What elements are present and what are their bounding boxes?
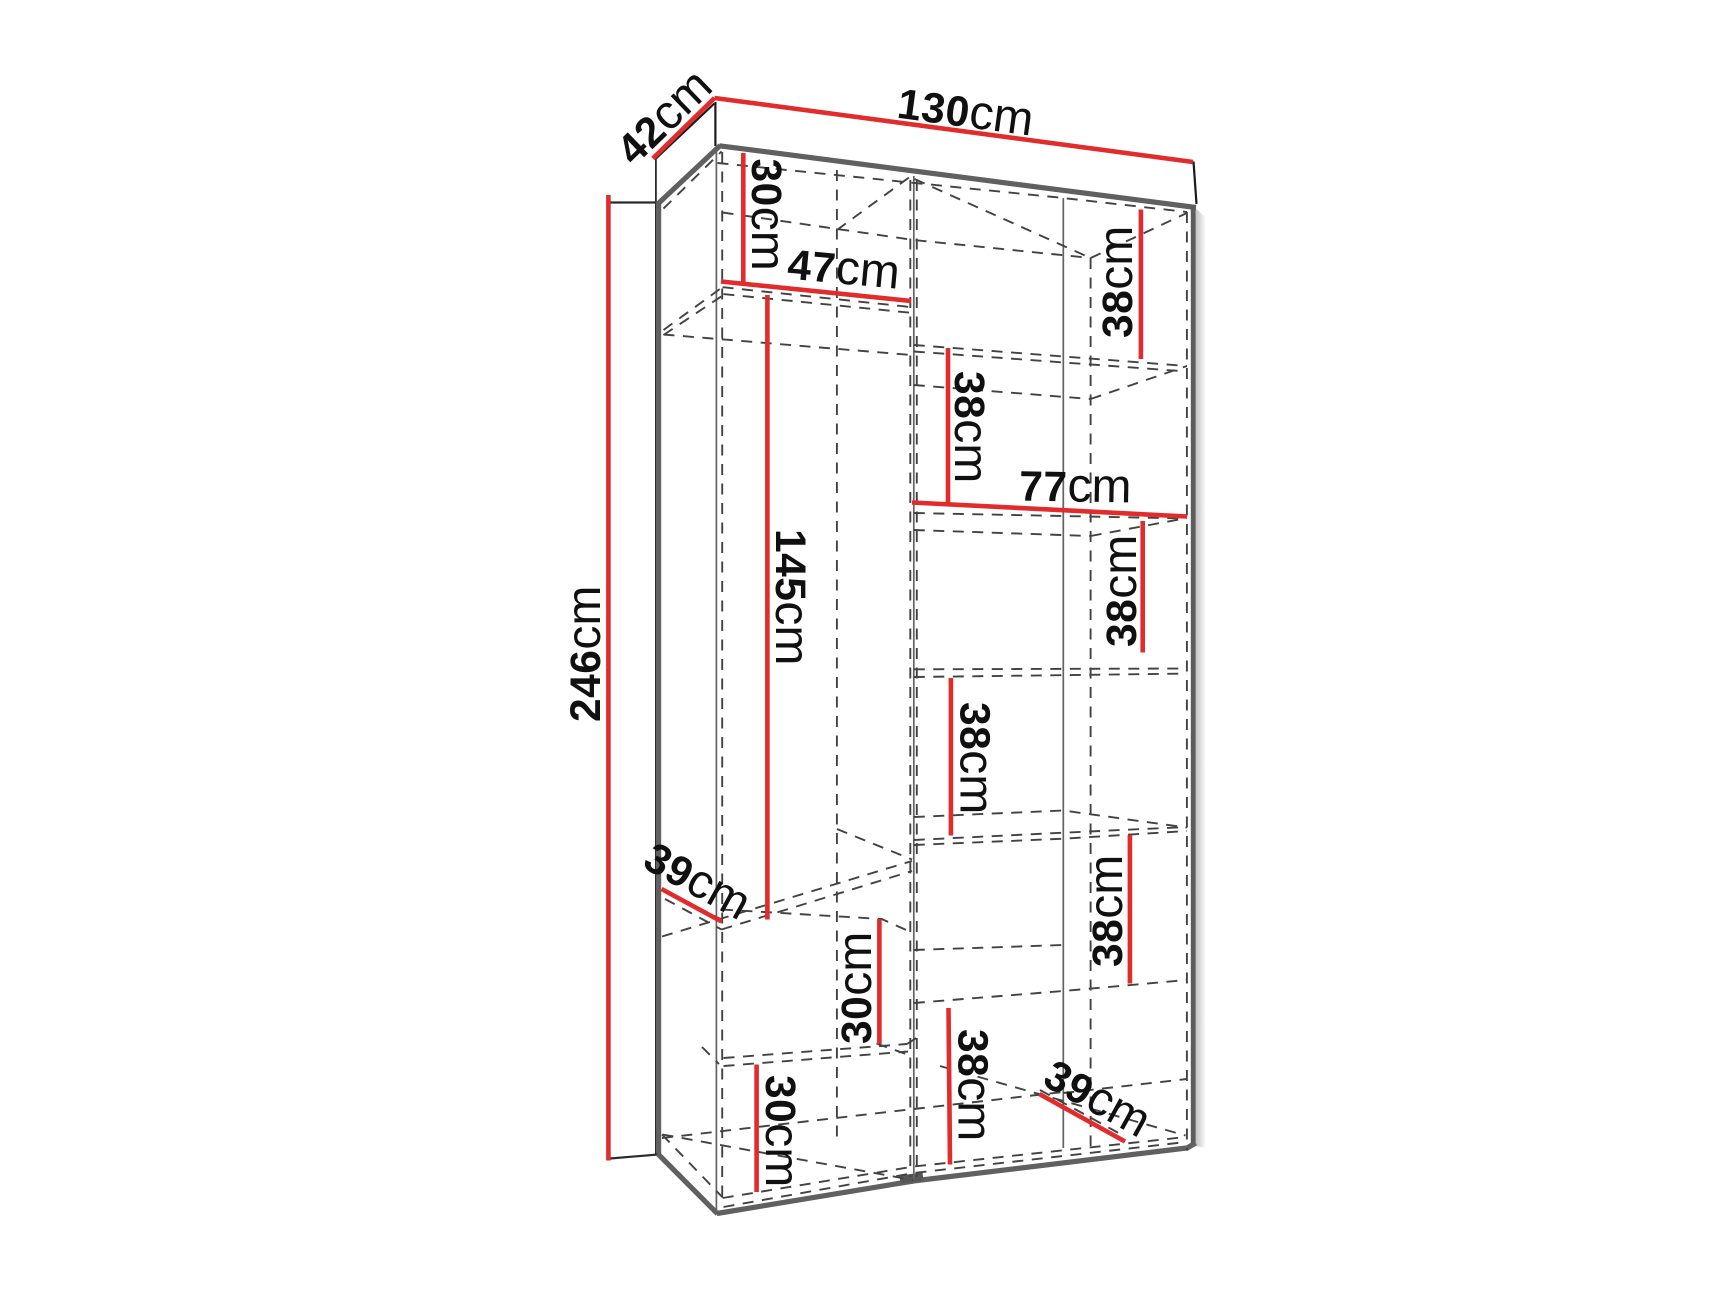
svg-text:246cm: 246cm [558, 586, 611, 722]
svg-text:77cm: 77cm [1019, 459, 1132, 514]
svg-text:145cm: 145cm [765, 529, 818, 665]
svg-text:30cm: 30cm [741, 159, 794, 271]
svg-text:38cm: 38cm [1094, 535, 1147, 647]
svg-text:30cm: 30cm [755, 1075, 808, 1187]
svg-text:30cm: 30cm [829, 932, 882, 1044]
svg-text:38cm: 38cm [1080, 855, 1133, 967]
svg-text:38cm: 38cm [1090, 226, 1143, 338]
svg-text:38cm: 38cm [944, 371, 997, 483]
svg-text:38cm: 38cm [948, 1029, 1001, 1141]
svg-text:38cm: 38cm [950, 702, 1003, 814]
